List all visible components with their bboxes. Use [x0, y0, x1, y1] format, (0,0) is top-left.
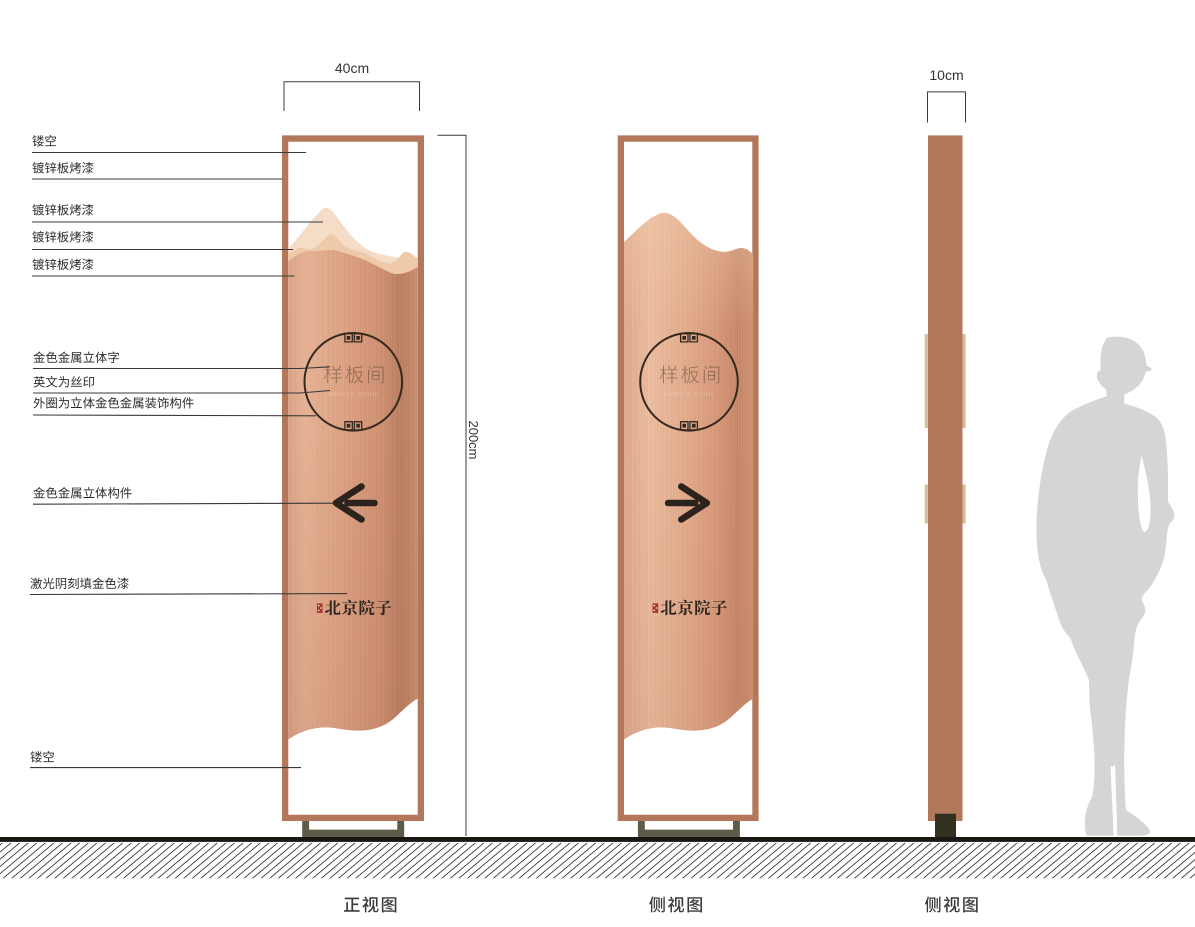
svg-text:SAMPLE ROOM: SAMPLE ROOM — [664, 392, 714, 398]
svg-text:10cm: 10cm — [929, 67, 963, 83]
svg-text:SAMPLE ROOM: SAMPLE ROOM — [328, 392, 378, 398]
svg-text:40cm: 40cm — [335, 60, 369, 76]
svg-text:200cm: 200cm — [466, 420, 481, 459]
